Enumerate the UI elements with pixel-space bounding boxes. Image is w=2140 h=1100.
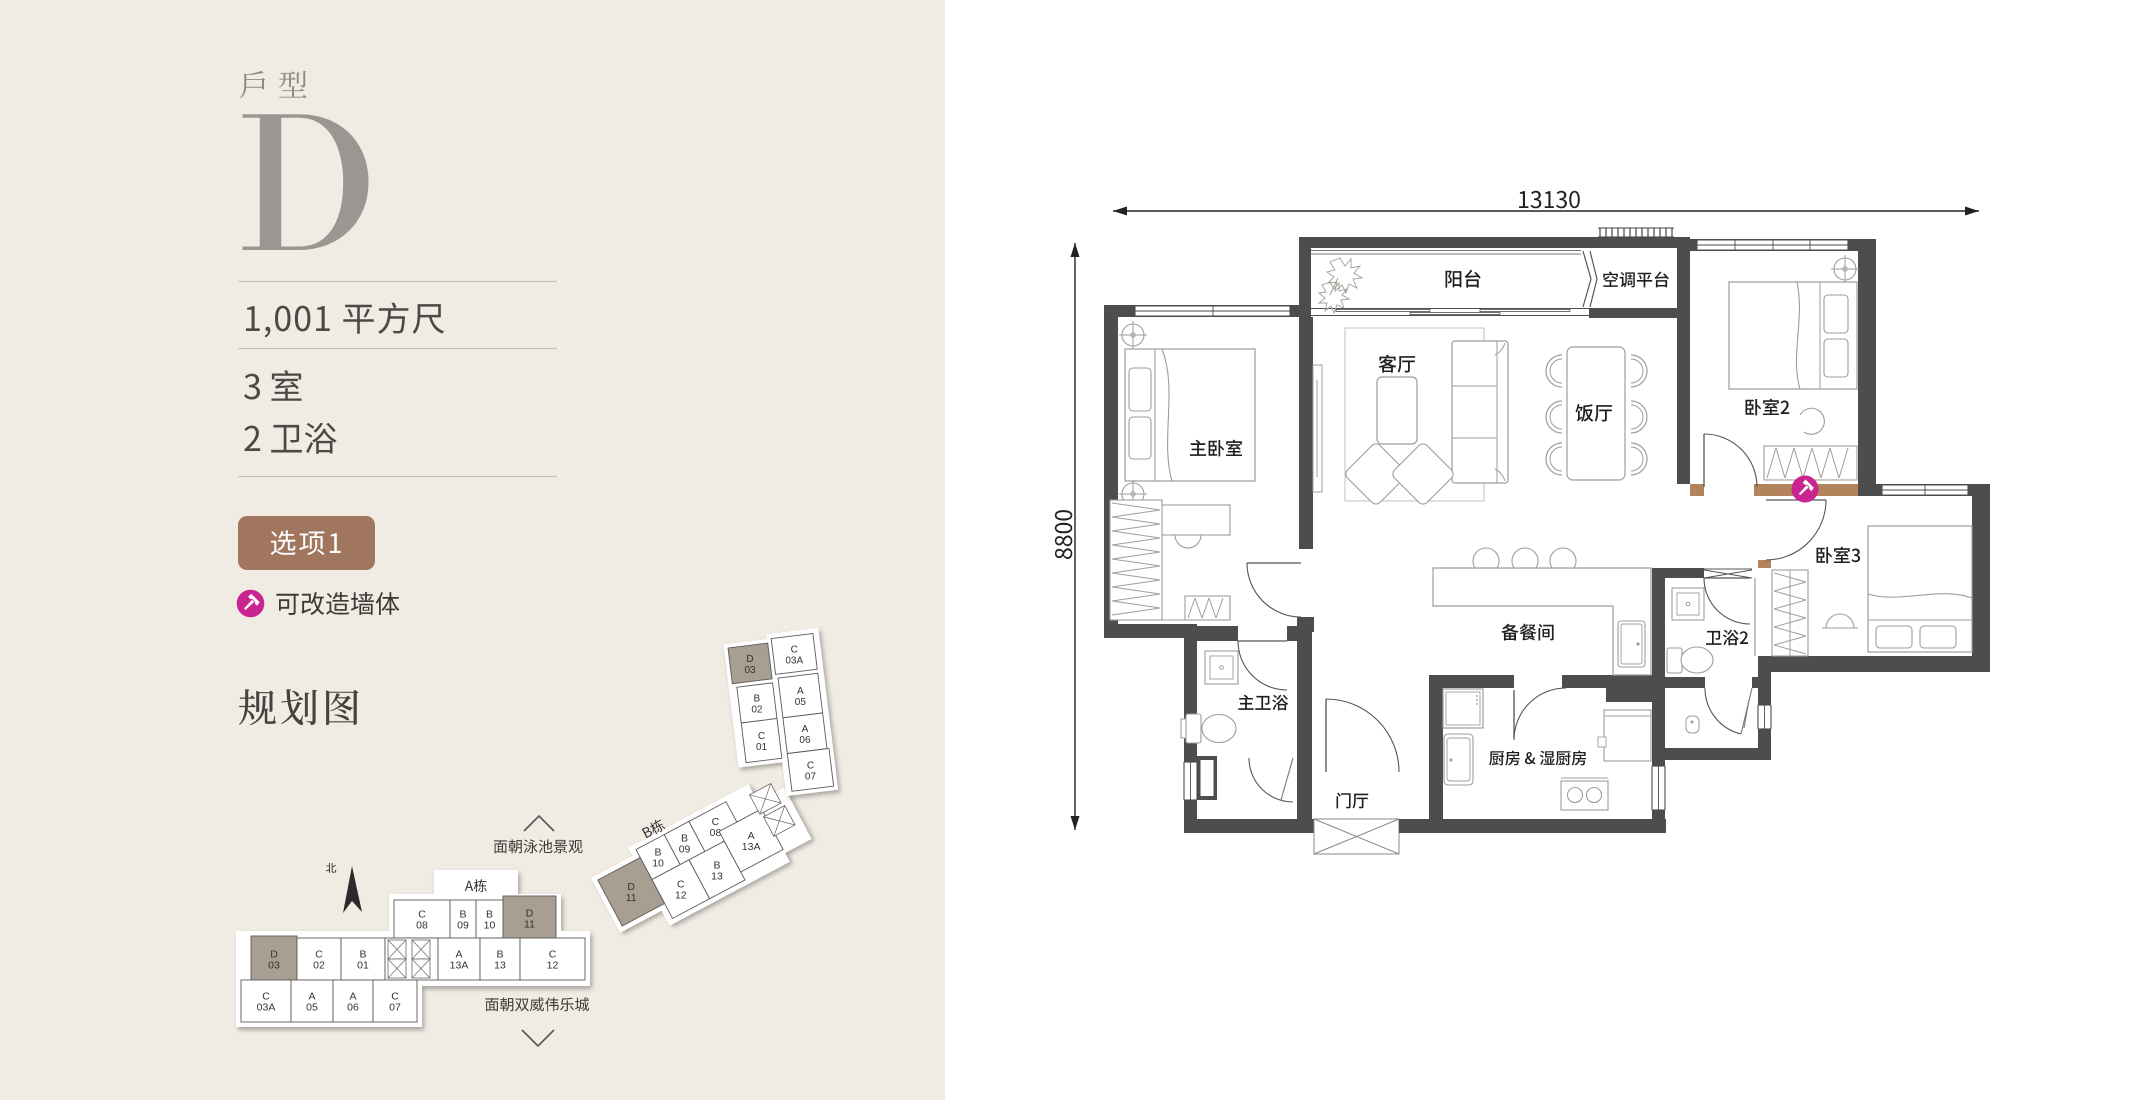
- svg-text:11: 11: [626, 892, 637, 904]
- svg-text:02: 02: [751, 704, 763, 715]
- svg-text:A: A: [797, 686, 804, 697]
- svg-text:08: 08: [416, 920, 428, 932]
- svg-text:03A: 03A: [257, 1002, 276, 1014]
- svg-text:A: A: [802, 724, 809, 735]
- svg-text:03: 03: [268, 960, 280, 972]
- svg-text:12: 12: [675, 890, 687, 902]
- svg-text:09: 09: [679, 843, 691, 855]
- svg-text:C: C: [807, 760, 814, 771]
- svg-text:B: B: [754, 693, 761, 704]
- svg-text:10: 10: [484, 920, 496, 932]
- svg-text:C: C: [791, 644, 798, 655]
- svg-text:D: D: [746, 654, 753, 665]
- svg-text:12: 12: [547, 960, 559, 972]
- svg-text:09: 09: [457, 920, 469, 932]
- svg-text:01: 01: [357, 960, 369, 972]
- svg-text:C: C: [758, 731, 765, 742]
- svg-text:03: 03: [744, 665, 756, 676]
- svg-text:13: 13: [494, 960, 506, 972]
- svg-text:07: 07: [389, 1002, 401, 1014]
- svg-text:07: 07: [805, 771, 817, 782]
- svg-text:11: 11: [524, 919, 535, 931]
- svg-text:05: 05: [306, 1002, 318, 1014]
- svg-text:03A: 03A: [785, 655, 803, 666]
- svg-text:13A: 13A: [742, 841, 761, 853]
- svg-text:06: 06: [799, 735, 811, 746]
- svg-text:01: 01: [756, 742, 768, 753]
- svg-text:06: 06: [347, 1002, 359, 1014]
- svg-text:10: 10: [652, 858, 664, 870]
- svg-text:05: 05: [795, 697, 807, 708]
- svg-text:02: 02: [313, 960, 325, 972]
- svg-text:13: 13: [711, 870, 723, 882]
- svg-text:13A: 13A: [450, 960, 469, 972]
